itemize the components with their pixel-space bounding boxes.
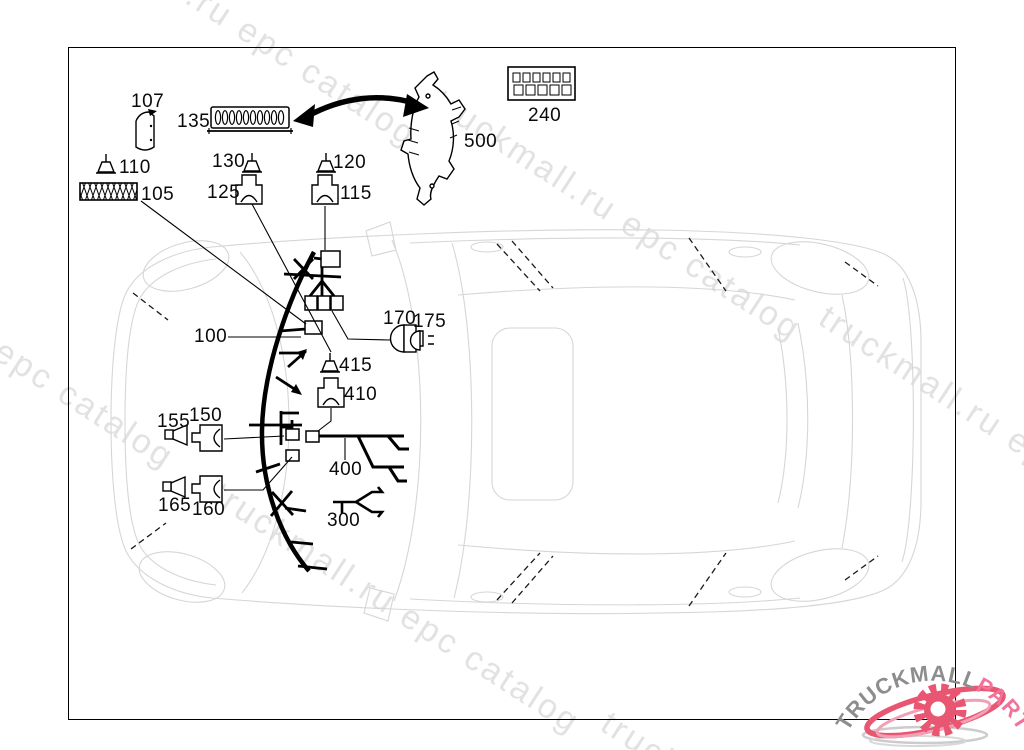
part-label-240[interactable]: 240 [528, 106, 561, 125]
diagram-art: TRUCKMALLPARTS [0, 0, 1024, 750]
part-label-135[interactable]: 135 [177, 112, 210, 131]
part-label-107[interactable]: 107 [131, 92, 164, 111]
part-label-165[interactable]: 165 [158, 496, 191, 515]
part-icon-135 [207, 107, 293, 134]
part-label-175[interactable]: 175 [413, 312, 446, 331]
gear-icon [919, 689, 961, 731]
part-label-415[interactable]: 415 [339, 356, 372, 375]
part-label-150[interactable]: 150 [189, 406, 222, 425]
part-icon-500 [401, 72, 465, 205]
part-icon-107 [136, 109, 157, 150]
part-label-160[interactable]: 160 [192, 500, 225, 519]
part-icon-175 [411, 331, 435, 350]
part-label-410[interactable]: 410 [344, 385, 377, 404]
part-icon-105 [80, 183, 137, 200]
car-outline [111, 222, 921, 621]
part-label-170[interactable]: 170 [383, 309, 416, 328]
part-label-130[interactable]: 130 [212, 152, 245, 171]
part-label-110[interactable]: 110 [119, 158, 151, 177]
part-label-115[interactable]: 115 [340, 184, 372, 203]
part-icon-165 [163, 477, 185, 497]
part-label-400[interactable]: 400 [329, 460, 362, 479]
part-icon-240 [508, 67, 575, 100]
part-icon-150 [192, 425, 222, 451]
part-label-120[interactable]: 120 [333, 153, 366, 172]
part-icon-415 [320, 353, 340, 372]
part-icon-110 [96, 154, 116, 173]
part-icon-115 [312, 175, 338, 204]
part-label-125[interactable]: 125 [207, 183, 240, 202]
page: truckmall.ru epc catalog truckmall.ru ep… [0, 0, 1024, 750]
part-label-105[interactable]: 105 [141, 185, 174, 204]
part-icon-410 [318, 378, 344, 407]
part-label-155[interactable]: 155 [157, 412, 190, 431]
pillar-marks [131, 238, 878, 606]
part-label-500[interactable]: 500 [464, 132, 497, 151]
swap-arrow [293, 94, 429, 127]
part-label-300[interactable]: 300 [327, 511, 360, 530]
part-label-100[interactable]: 100 [194, 327, 227, 346]
